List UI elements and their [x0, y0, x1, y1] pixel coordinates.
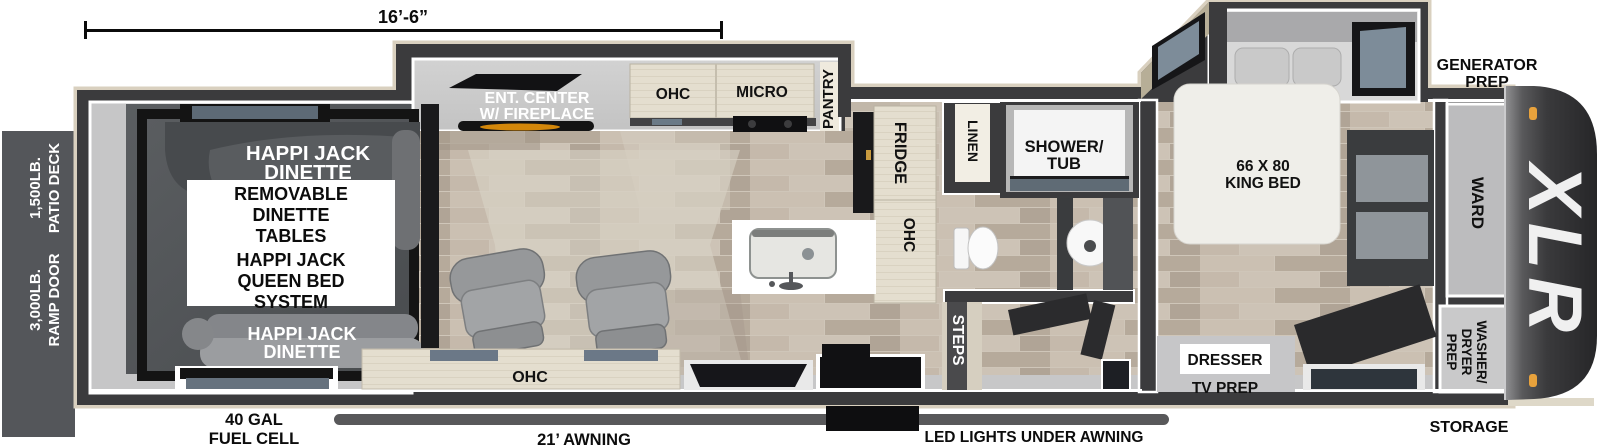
svg-text:RAMP DOOR: RAMP DOOR: [46, 253, 63, 346]
svg-text:STEPS: STEPS: [949, 315, 966, 366]
svg-text:40 GAL: 40 GAL: [225, 411, 283, 429]
svg-text:XLR: XLR: [1512, 160, 1597, 340]
svg-text:TV PREP: TV PREP: [1192, 380, 1258, 397]
svg-text:DINETTE: DINETTE: [263, 342, 340, 362]
svg-text:LED LIGHTS UNDER AWNING: LED LIGHTS UNDER AWNING: [924, 429, 1143, 446]
svg-text:PREP: PREP: [1444, 334, 1459, 371]
svg-text:OHC: OHC: [512, 369, 548, 386]
svg-text:FUEL CELL: FUEL CELL: [209, 430, 299, 446]
svg-text:16’-6”: 16’-6”: [378, 7, 428, 27]
svg-text:OHC: OHC: [900, 218, 917, 252]
svg-text:1,500LB.: 1,500LB.: [27, 157, 44, 219]
svg-text:66 X 80: 66 X 80: [1236, 158, 1289, 175]
svg-text:KING BED: KING BED: [1225, 175, 1301, 192]
svg-text:MICRO: MICRO: [736, 84, 788, 101]
svg-text:W/ FIREPLACE: W/ FIREPLACE: [480, 106, 595, 123]
svg-text:ENT. CENTER: ENT. CENTER: [485, 90, 590, 107]
svg-text:HAPPI JACK: HAPPI JACK: [247, 324, 356, 344]
svg-text:FRIDGE: FRIDGE: [891, 122, 909, 184]
svg-text:LINEN: LINEN: [965, 120, 981, 162]
svg-text:REMOVABLE: REMOVABLE: [234, 184, 348, 204]
svg-text:21’ AWNING: 21’ AWNING: [537, 431, 631, 446]
svg-text:TABLES: TABLES: [256, 226, 327, 246]
svg-text:HAPPI JACK: HAPPI JACK: [236, 250, 345, 270]
svg-text:3,000LB.: 3,000LB.: [27, 269, 44, 331]
svg-text:SHOWER/: SHOWER/: [1025, 138, 1104, 156]
svg-text:WARD: WARD: [1468, 177, 1487, 229]
svg-text:PREP: PREP: [1465, 74, 1509, 91]
svg-text:DRYER: DRYER: [1459, 329, 1474, 376]
svg-text:QUEEN BED: QUEEN BED: [237, 271, 344, 291]
svg-text:STORAGE: STORAGE: [1430, 419, 1509, 436]
svg-text:DINETTE: DINETTE: [252, 205, 329, 225]
svg-text:PATIO DECK: PATIO DECK: [46, 143, 63, 233]
svg-text:DRESSER: DRESSER: [1188, 352, 1263, 369]
svg-text:SYSTEM: SYSTEM: [254, 292, 328, 312]
svg-text:TUB: TUB: [1047, 155, 1081, 173]
svg-text:OHC: OHC: [656, 86, 690, 103]
svg-text:PANTRY: PANTRY: [820, 69, 837, 129]
svg-text:GENERATOR: GENERATOR: [1437, 57, 1538, 74]
svg-text:WASHER/: WASHER/: [1474, 320, 1489, 383]
